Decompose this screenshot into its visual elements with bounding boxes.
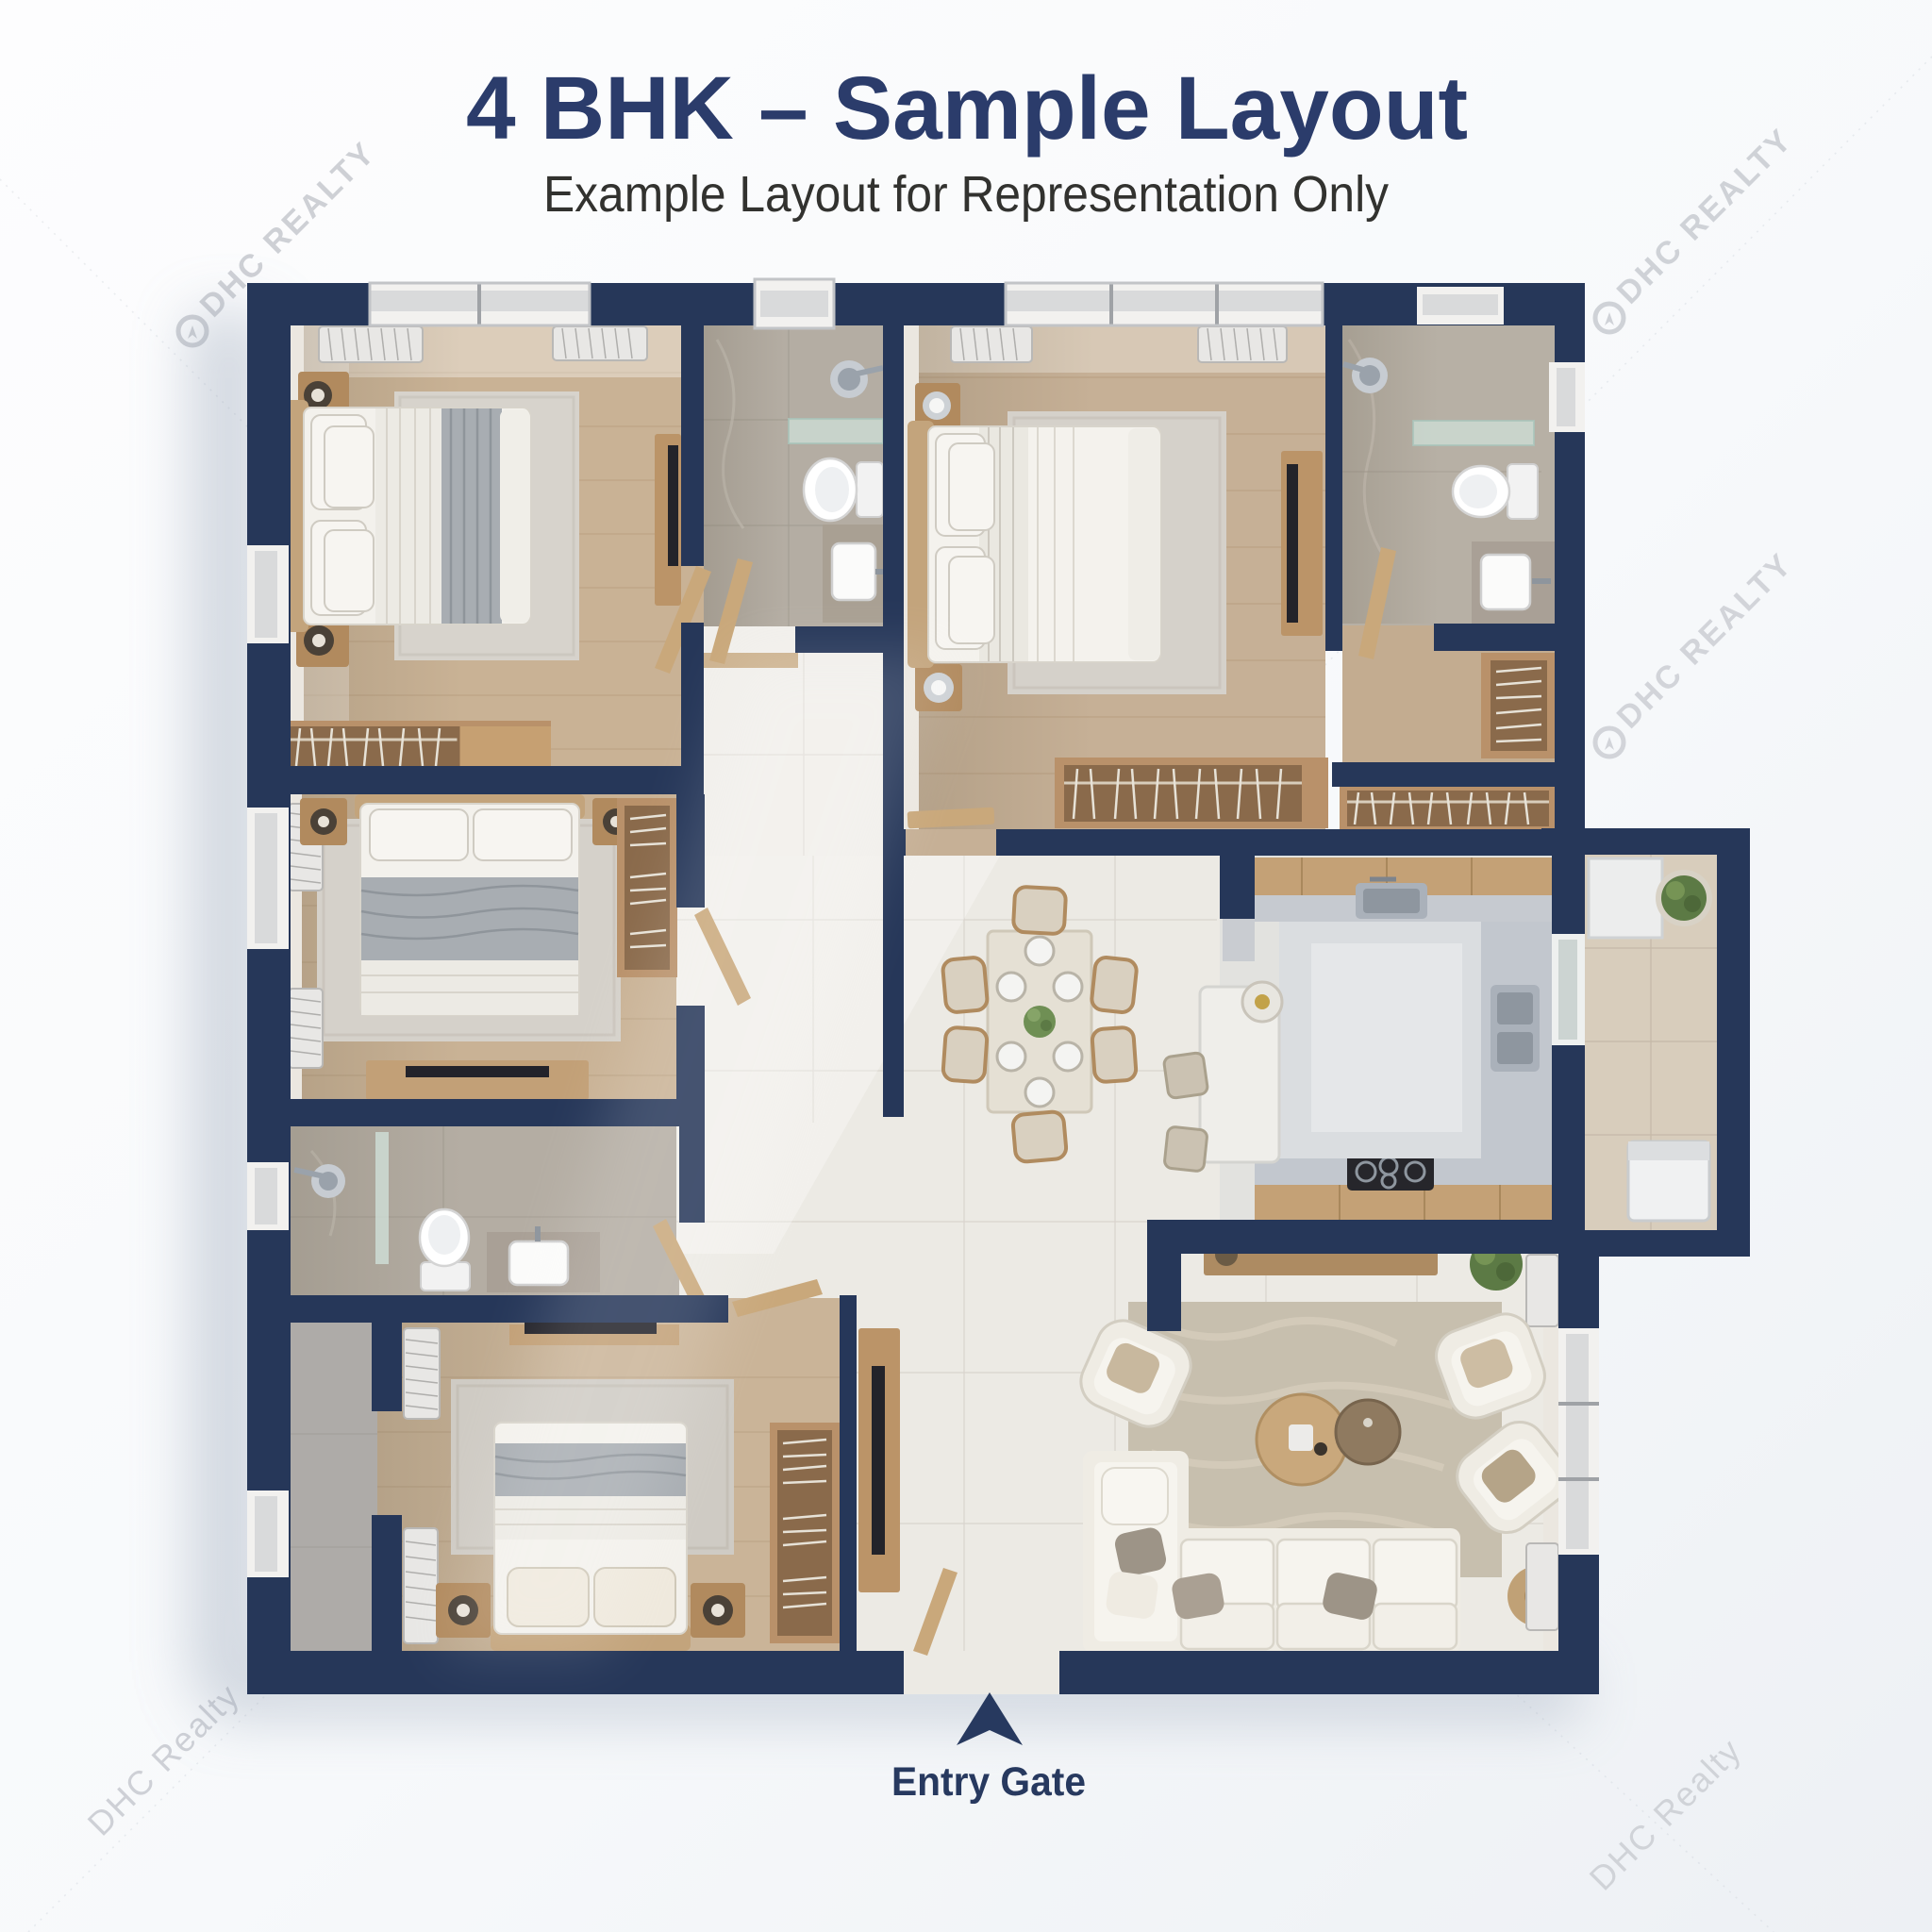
svg-text:Example Layout for Representat: Example Layout for Representation Only	[543, 166, 1389, 223]
svg-text:Entry Gate: Entry Gate	[891, 1759, 1086, 1805]
svg-text:4 BHK – Sample Layout: 4 BHK – Sample Layout	[466, 58, 1468, 158]
